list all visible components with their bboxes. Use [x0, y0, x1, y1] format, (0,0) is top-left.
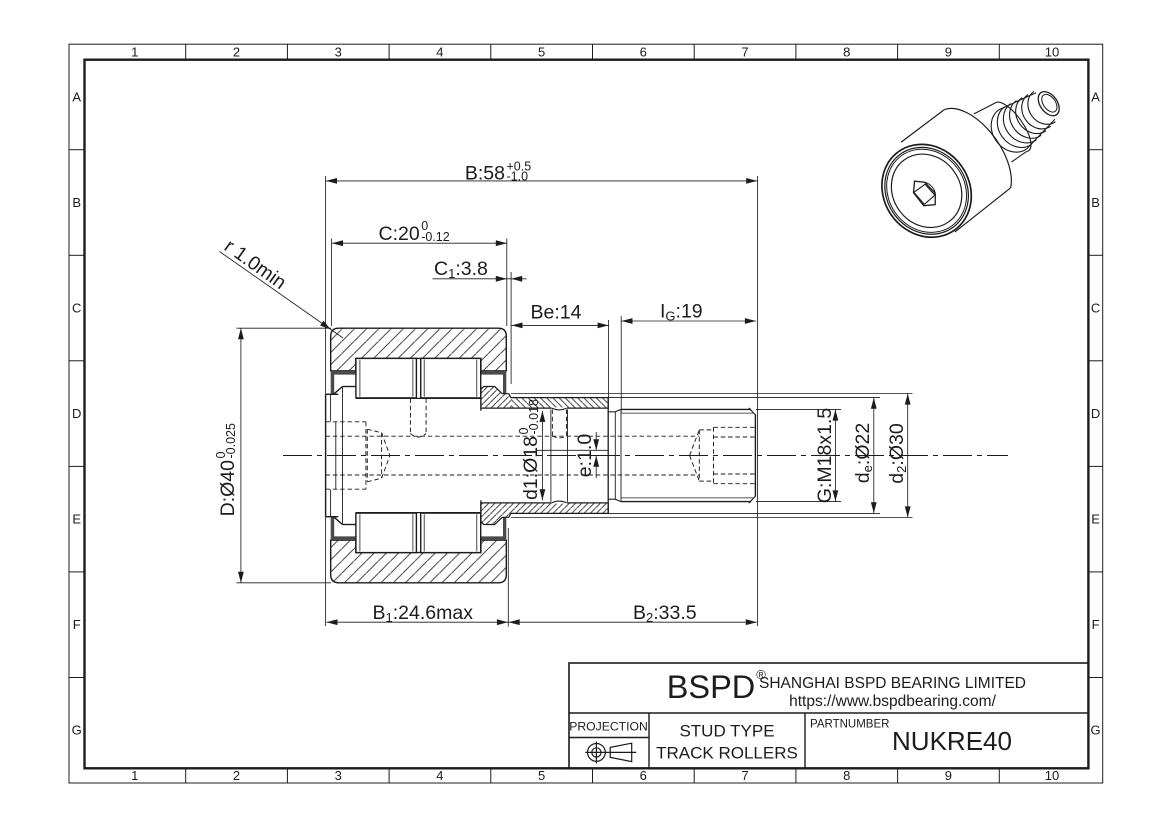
svg-text:2: 2: [233, 768, 240, 783]
svg-text:Be:14: Be:14: [531, 302, 582, 324]
svg-text:10: 10: [1045, 768, 1059, 783]
svg-text:e:1.0: e:1.0: [574, 434, 596, 478]
svg-text:BSPD: BSPD: [667, 669, 756, 705]
svg-text:3: 3: [335, 768, 342, 783]
svg-text:4: 4: [436, 45, 443, 60]
svg-text:A: A: [1091, 90, 1100, 105]
svg-text:-0.12: -0.12: [421, 230, 450, 244]
svg-text:SHANGHAI BSPD BEARING LIMITED: SHANGHAI BSPD BEARING LIMITED: [759, 675, 1026, 692]
svg-text:6: 6: [640, 768, 647, 783]
svg-text:3: 3: [335, 45, 342, 60]
svg-text:-0.025: -0.025: [224, 423, 238, 458]
svg-text:STUD TYPE: STUD TYPE: [679, 722, 774, 741]
svg-text:8: 8: [843, 768, 850, 783]
svg-text:D: D: [72, 406, 81, 421]
svg-text:7: 7: [741, 768, 748, 783]
svg-text:B:58: B:58: [465, 163, 505, 185]
svg-text:1: 1: [131, 768, 138, 783]
svg-text:PROJECTION: PROJECTION: [569, 720, 648, 734]
svg-text:G:M18x1.5: G:M18x1.5: [814, 408, 836, 504]
svg-text:5: 5: [538, 45, 545, 60]
svg-text:D:Ø40: D:Ø40: [217, 460, 239, 517]
svg-text:B: B: [72, 195, 81, 210]
svg-text:E: E: [1091, 512, 1100, 527]
svg-text:9: 9: [945, 45, 952, 60]
svg-text:https://www.bspdbearing.com/: https://www.bspdbearing.com/: [789, 693, 996, 710]
svg-text:B: B: [1091, 195, 1100, 210]
svg-text:NUKRE40: NUKRE40: [892, 726, 1012, 756]
svg-text:C: C: [72, 301, 81, 316]
svg-text:-1.0: -1.0: [507, 170, 529, 184]
svg-text:d2:Ø30: d2:Ø30: [886, 423, 909, 484]
svg-text:D: D: [1091, 406, 1100, 421]
svg-text:7: 7: [741, 45, 748, 60]
svg-text:10: 10: [1045, 45, 1059, 60]
svg-text:G: G: [72, 723, 82, 738]
svg-text:de:Ø22: de:Ø22: [852, 423, 875, 483]
svg-text:F: F: [73, 617, 81, 632]
svg-text:B2:33.5: B2:33.5: [633, 602, 697, 625]
svg-text:G: G: [1091, 723, 1101, 738]
svg-text:5: 5: [538, 768, 545, 783]
svg-text:E: E: [72, 512, 81, 527]
svg-text:C: C: [1091, 301, 1100, 316]
svg-text:TRACK ROLLERS: TRACK ROLLERS: [656, 744, 798, 763]
svg-text:8: 8: [843, 45, 850, 60]
svg-text:4: 4: [436, 768, 443, 783]
svg-text:2: 2: [233, 45, 240, 60]
svg-text:A: A: [72, 90, 81, 105]
svg-text:C1:3.8: C1:3.8: [434, 258, 488, 281]
svg-text:9: 9: [945, 768, 952, 783]
svg-text:F: F: [1092, 617, 1100, 632]
svg-text:1: 1: [131, 45, 138, 60]
svg-text:-0.018: -0.018: [527, 399, 541, 434]
svg-text:C:20: C:20: [378, 223, 419, 245]
svg-text:d1:Ø18: d1:Ø18: [520, 436, 542, 500]
svg-text:PARTNUMBER: PARTNUMBER: [810, 719, 889, 731]
svg-text:6: 6: [640, 45, 647, 60]
